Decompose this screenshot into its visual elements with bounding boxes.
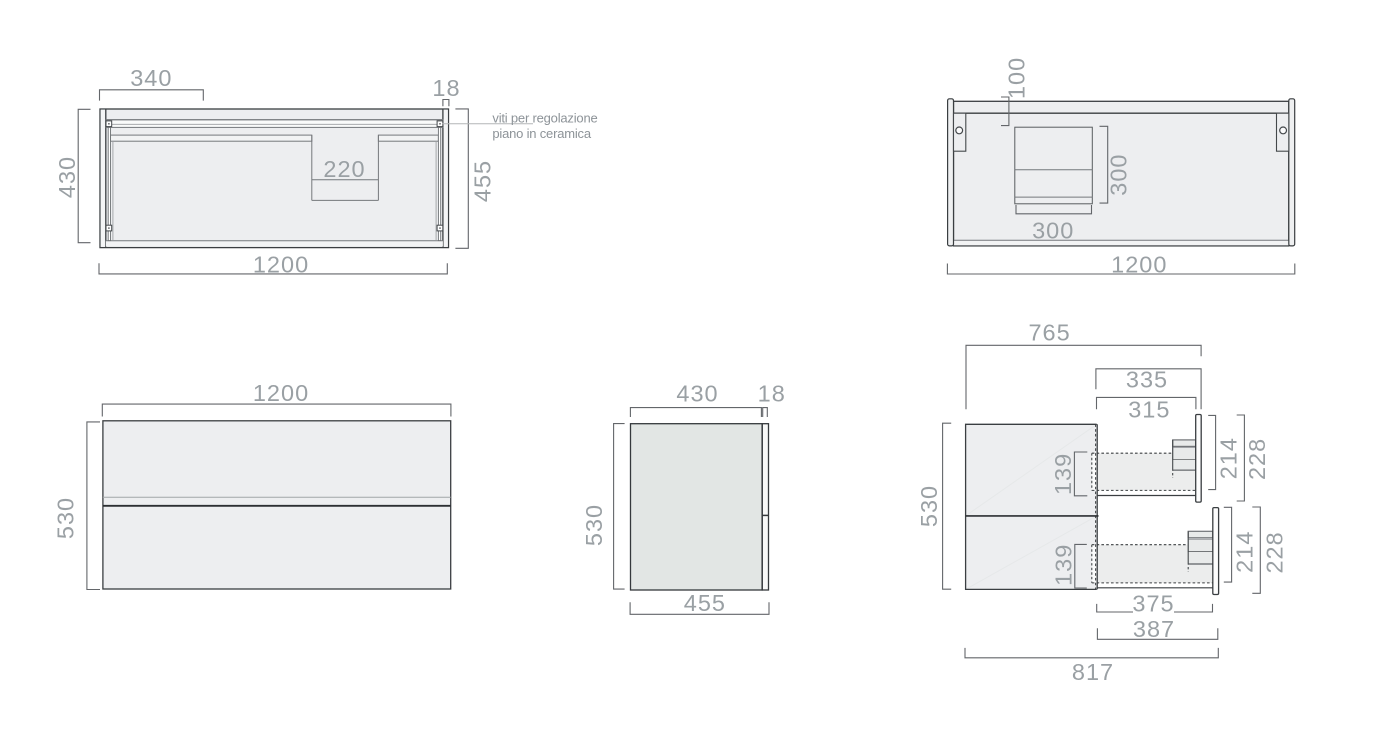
svg-text:300: 300 [1106, 153, 1132, 195]
svg-text:335: 335 [1126, 367, 1168, 393]
svg-text:387: 387 [1133, 616, 1175, 642]
svg-text:228: 228 [1244, 438, 1270, 480]
svg-text:315: 315 [1128, 396, 1170, 422]
svg-text:530: 530 [53, 497, 79, 539]
svg-text:18: 18 [432, 75, 460, 101]
svg-text:1200: 1200 [1111, 252, 1167, 278]
svg-text:530: 530 [916, 485, 942, 527]
svg-text:viti per regolazione: viti per regolazione [492, 110, 597, 125]
svg-text:817: 817 [1072, 659, 1114, 685]
svg-text:1200: 1200 [253, 252, 309, 278]
svg-text:430: 430 [676, 381, 718, 407]
svg-text:220: 220 [323, 156, 365, 182]
svg-text:300: 300 [1032, 218, 1074, 244]
svg-text:530: 530 [581, 504, 607, 546]
svg-text:214: 214 [1232, 531, 1258, 573]
svg-text:piano in ceramica: piano in ceramica [492, 126, 591, 141]
svg-text:375: 375 [1132, 590, 1174, 616]
svg-text:18: 18 [758, 381, 786, 407]
svg-text:139: 139 [1050, 544, 1076, 586]
svg-text:228: 228 [1262, 531, 1288, 573]
svg-text:214: 214 [1216, 437, 1242, 479]
svg-text:139: 139 [1050, 453, 1076, 495]
svg-text:1200: 1200 [253, 380, 309, 406]
svg-text:455: 455 [470, 160, 496, 202]
svg-text:765: 765 [1028, 319, 1070, 345]
svg-text:455: 455 [684, 590, 726, 616]
svg-text:100: 100 [1004, 57, 1030, 99]
svg-text:430: 430 [54, 156, 80, 198]
svg-text:340: 340 [130, 65, 172, 91]
